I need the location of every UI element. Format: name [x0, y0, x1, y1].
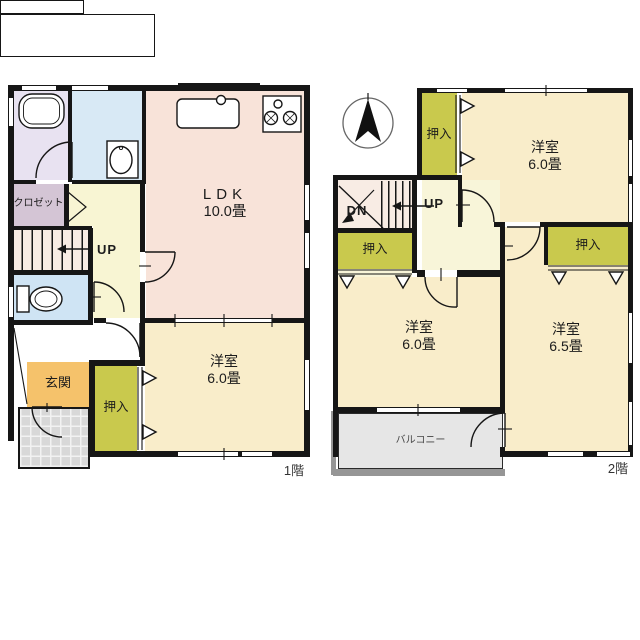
wall	[458, 180, 462, 222]
balcony-wall-bottom	[333, 469, 505, 476]
window	[548, 451, 583, 457]
entrance-hall	[13, 325, 140, 362]
bedroom-se-label: 洋室	[516, 321, 616, 338]
bedroom-1f-size: 6.0畳	[174, 370, 274, 387]
window	[242, 451, 272, 457]
wall	[8, 320, 92, 325]
kitchen-vent-line	[178, 83, 260, 85]
wall	[140, 323, 145, 366]
oshiire-2f-top-label: 押入	[420, 127, 458, 142]
window	[505, 88, 587, 93]
wall	[333, 228, 417, 233]
porch-tiles	[18, 407, 90, 469]
room-washroom	[72, 91, 142, 180]
kitchen-vent-bump	[0, 0, 84, 14]
genkan-label: 玄関	[30, 375, 86, 391]
window	[597, 451, 630, 457]
wall	[540, 222, 633, 227]
wall	[458, 222, 462, 227]
window	[22, 85, 56, 91]
wall	[8, 270, 92, 275]
room-bathroom	[14, 91, 68, 180]
wall	[417, 175, 462, 180]
oshiire-2f-right-label: 押入	[558, 238, 618, 253]
up-label-1f: UP	[93, 242, 121, 258]
window	[628, 140, 633, 176]
window	[72, 85, 108, 91]
floor1-label: 1階	[276, 463, 312, 479]
wall	[457, 270, 500, 277]
wall	[95, 360, 140, 366]
bedroom-ne-label: 洋室	[495, 139, 595, 156]
window	[304, 360, 310, 410]
fusuma-strip	[338, 269, 412, 277]
wall	[8, 85, 14, 441]
room-bedroom-1f	[145, 323, 304, 451]
wall	[333, 175, 422, 180]
window	[628, 313, 633, 363]
wall	[272, 318, 305, 323]
up-label-2f: UP	[420, 196, 448, 212]
wall	[500, 227, 505, 413]
wall	[8, 180, 36, 184]
window	[8, 98, 14, 126]
wall	[500, 447, 505, 457]
floorplan: LDK 10.0畳 洋室 6.0畳 玄関 クロゼット 押入 UP 1階 洋室 6…	[0, 0, 640, 640]
stairs-2f-treads	[381, 181, 412, 228]
window	[8, 287, 14, 317]
oshiire-1f-label: 押入	[95, 400, 137, 415]
wall	[544, 227, 548, 265]
wall	[64, 184, 69, 228]
window	[304, 233, 310, 268]
bedroom-sw-label: 洋室	[369, 319, 469, 336]
bedroom-se-size: 6.5畳	[516, 338, 616, 355]
bedroom-sw-size: 6.0畳	[369, 336, 469, 353]
wall	[338, 407, 377, 413]
window	[178, 451, 238, 457]
entrance-side	[13, 362, 27, 407]
hall-gap	[69, 184, 93, 226]
kitchen-counter	[0, 14, 155, 57]
bedroom-1f-label: 洋室	[174, 353, 274, 370]
window	[628, 402, 633, 445]
window	[304, 185, 310, 220]
wall	[140, 318, 175, 323]
ldk-label: LDK	[175, 186, 275, 204]
compass-icon	[343, 93, 393, 148]
room-toilet	[13, 275, 88, 320]
wall	[8, 226, 92, 230]
wall	[142, 90, 146, 184]
wall	[140, 282, 145, 323]
sliding-opening	[175, 318, 272, 323]
wall	[460, 407, 500, 413]
wall	[333, 175, 338, 457]
dn-label: DN	[343, 203, 371, 219]
closet-label: クロゼット	[13, 198, 64, 210]
wall	[68, 90, 72, 182]
ldk-size: 10.0畳	[175, 204, 275, 221]
wall	[72, 180, 144, 184]
wall	[417, 270, 425, 277]
window	[437, 88, 467, 93]
wall	[412, 180, 417, 233]
wall	[412, 233, 417, 273]
stairs-1f	[13, 230, 88, 270]
balcony-label: バルコニー	[378, 435, 463, 447]
window	[377, 407, 460, 413]
wall	[94, 318, 106, 323]
window	[628, 184, 633, 222]
wall	[140, 184, 145, 252]
bedroom-ne-size: 6.0畳	[495, 156, 595, 173]
oshiire-2f-mid-label: 押入	[345, 242, 405, 257]
floor2-label: 2階	[600, 461, 636, 477]
